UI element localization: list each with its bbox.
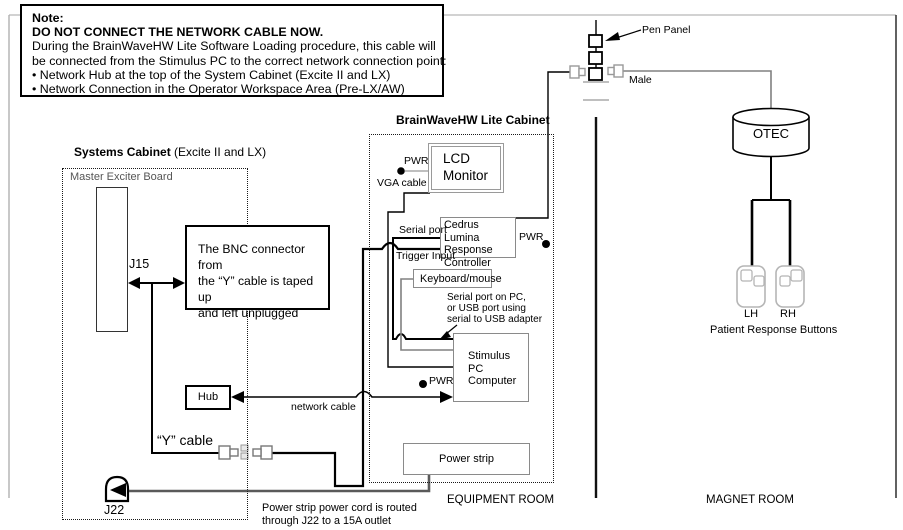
note-bullet-1: • Network Hub at the top of the System C… <box>32 68 442 82</box>
master-exciter-board-label: Master Exciter Board <box>70 171 173 184</box>
pen-panel-label: Pen Panel <box>642 24 690 36</box>
male-plug-right-icon <box>608 65 623 77</box>
serial-note-line-2: or USB port using <box>447 303 542 314</box>
monitor-pwr-label: PWR <box>404 155 429 167</box>
cedrus-pwr-label: PWR <box>519 231 544 243</box>
j22-label: J22 <box>104 503 124 517</box>
hub-box: Hub <box>185 385 231 410</box>
pen-panel-connector-2 <box>589 52 602 64</box>
male-plug-left-icon <box>570 66 585 78</box>
otec-label: OTEC <box>741 127 801 142</box>
pen-panel-callout-arrow-icon <box>605 32 620 41</box>
y-cable-label: “Y” cable <box>157 432 213 448</box>
handset-lh-icon <box>737 266 765 307</box>
otec-cylinder-top <box>733 109 809 126</box>
serial-note: Serial port on PC, or USB port using ser… <box>447 292 542 325</box>
pen-panel-continuation-marks <box>583 82 609 100</box>
note-title: Note: <box>32 11 442 25</box>
lcd-monitor-box: LCD Monitor <box>428 143 504 193</box>
stimulus-pc-line-1: Stimulus <box>468 350 528 363</box>
bnc-note-line-2: the “Y” cable is taped up <box>198 273 328 305</box>
lh-label: LH <box>744 308 758 321</box>
note-body-1: During the BrainWaveHW Lite Software Loa… <box>32 39 442 53</box>
cedrus-line-1: Cedrus Lumina <box>444 219 515 244</box>
note-box: Note: DO NOT CONNECT THE NETWORK CABLE N… <box>20 4 444 97</box>
rh-label: RH <box>780 308 796 321</box>
trigger-input-label: Trigger Input <box>396 250 455 262</box>
response-button-wires <box>752 200 790 266</box>
serial-note-line-3: serial to USB adapter <box>447 314 542 325</box>
equipment-room-label: EQUIPMENT ROOM <box>447 494 554 507</box>
systems-cabinet-outline <box>62 168 248 520</box>
serial-note-line-1: Serial port on PC, <box>447 292 542 303</box>
power-cord-footnote: Power strip power cord is routed through… <box>262 502 417 528</box>
bnc-note-line-3: and left unplugged <box>198 305 328 321</box>
j15-label: J15 <box>129 257 149 271</box>
power-strip-label: Power strip <box>404 444 529 465</box>
serial-port-label: Serial port <box>399 224 447 236</box>
lcd-monitor-line-1: LCD <box>443 151 470 166</box>
note-body-2: be connected from the Stimulus PC to the… <box>32 54 442 68</box>
handset-rh-icon <box>776 266 804 307</box>
stimulus-pc-box: Stimulus PC Computer <box>453 333 529 402</box>
y-cable-plug-right-icon <box>253 446 272 459</box>
stimulus-pc-line-2: PC <box>468 363 528 376</box>
pc-pwr-label: PWR <box>429 375 454 387</box>
systems-cabinet-title-bold: Systems Cabinet <box>74 145 171 159</box>
pen-panel-connector-3 <box>589 68 602 80</box>
otec-splitter-wire <box>752 153 790 200</box>
power-strip-box: Power strip <box>403 443 530 475</box>
note-bullet-2: • Network Connection in the Operator Wor… <box>32 82 442 96</box>
systems-cabinet-title: Systems Cabinet (Excite II and LX) <box>74 146 266 160</box>
keyboard-mouse-label: Keyboard/mouse <box>414 270 491 285</box>
stimulus-pc-line-3: Computer <box>468 375 528 388</box>
network-cable-label: network cable <box>291 401 356 413</box>
lite-cabinet-title: BrainWaveHW Lite Cabinet <box>396 114 550 128</box>
keyboard-mouse-box: Keyboard/mouse <box>413 269 492 288</box>
note-warning: DO NOT CONNECT THE NETWORK CABLE NOW. <box>32 25 442 39</box>
bnc-note-line-1: The BNC connector from <box>198 241 328 273</box>
pen-panel-connector-1 <box>589 35 602 47</box>
male-label: Male <box>629 74 652 86</box>
master-exciter-board-box <box>96 187 128 332</box>
magnet-room-label: MAGNET ROOM <box>706 494 794 507</box>
systems-cabinet-title-suffix: (Excite II and LX) <box>171 145 266 159</box>
power-cord-footnote-line-2: through J22 to a 15A outlet <box>262 515 417 528</box>
pen-panel-callout-line <box>616 30 641 38</box>
hub-label: Hub <box>187 387 229 403</box>
power-cord-footnote-line-1: Power strip power cord is routed <box>262 502 417 515</box>
vga-cable-label: VGA cable <box>377 177 427 189</box>
patient-response-buttons-label: Patient Response Buttons <box>710 324 837 337</box>
wiring-diagram: Note: DO NOT CONNECT THE NETWORK CABLE N… <box>0 0 903 530</box>
lcd-monitor-line-2: Monitor <box>443 168 488 183</box>
bnc-note-box: The BNC connector from the “Y” cable is … <box>185 225 330 310</box>
